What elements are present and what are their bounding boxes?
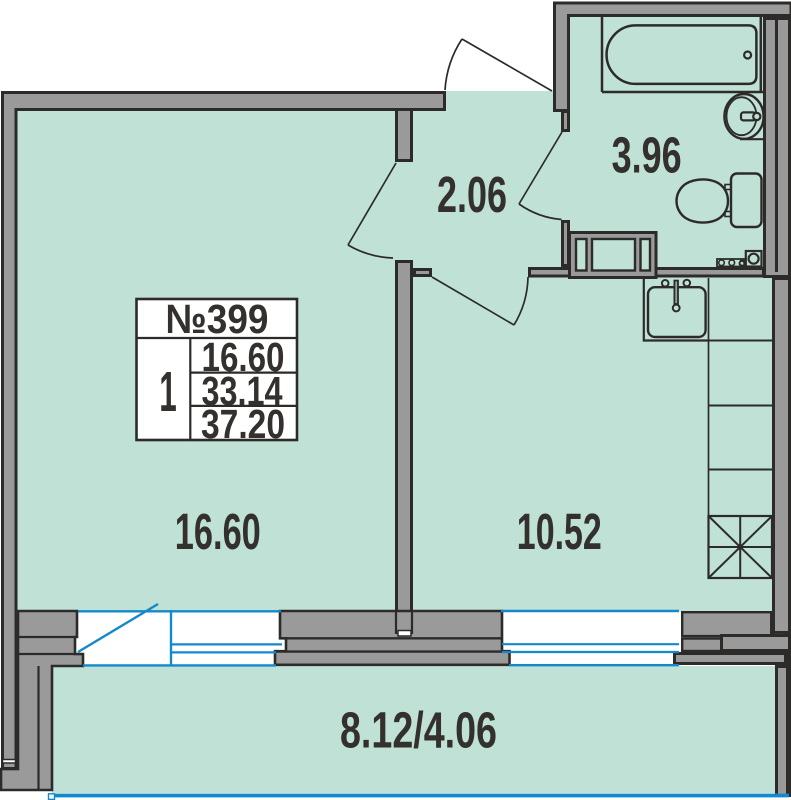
svg-text:2.06: 2.06 (437, 166, 507, 223)
svg-text:16.60: 16.60 (175, 503, 261, 560)
svg-text:10.52: 10.52 (517, 503, 602, 560)
svg-text:1: 1 (159, 360, 177, 424)
svg-text:3.96: 3.96 (612, 127, 682, 184)
svg-text:8.12/4.06: 8.12/4.06 (340, 702, 497, 759)
svg-text:37.20: 37.20 (201, 401, 285, 447)
